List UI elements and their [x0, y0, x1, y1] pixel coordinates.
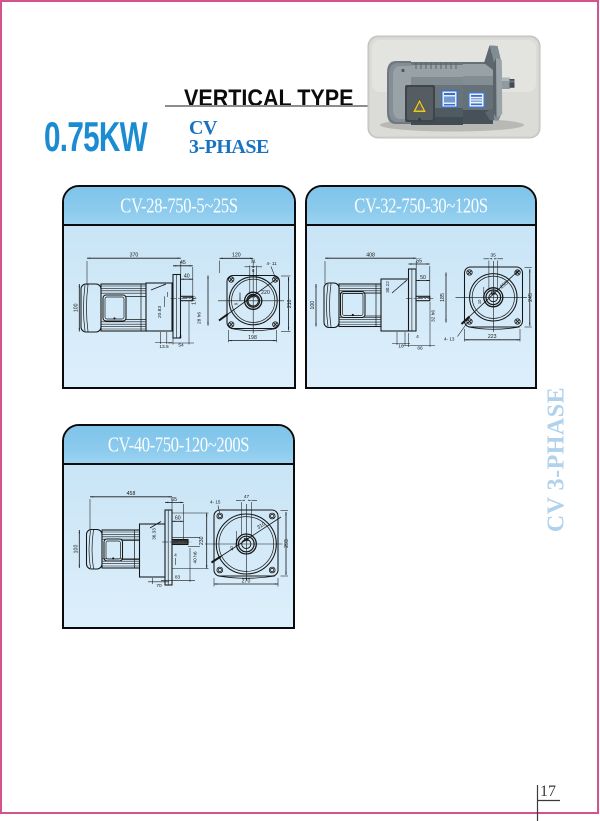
svg-text:255: 255: [499, 280, 510, 290]
svg-text:4- 15: 4- 15: [210, 500, 221, 505]
svg-text:16: 16: [398, 344, 404, 350]
svg-text:35: 35: [491, 252, 497, 258]
svg-text:66: 66: [417, 345, 423, 351]
svg-text:370: 370: [130, 253, 139, 259]
svg-text:198: 198: [248, 335, 257, 341]
svg-text:65: 65: [171, 497, 177, 503]
svg-text:223: 223: [488, 334, 497, 340]
svg-text:4: 4: [179, 334, 182, 340]
svg-text:20.83: 20.83: [157, 306, 163, 318]
svg-text:4: 4: [416, 334, 419, 340]
svg-text:83: 83: [175, 574, 181, 580]
svg-text:310: 310: [256, 521, 267, 531]
svg-text:4: 4: [174, 553, 177, 559]
svg-text:32 h6: 32 h6: [431, 310, 437, 322]
svg-text:10: 10: [229, 546, 234, 551]
svg-text:30.22: 30.22: [385, 281, 390, 293]
svg-text:8: 8: [252, 268, 255, 273]
svg-text:60: 60: [175, 516, 181, 522]
svg-text:170: 170: [192, 296, 198, 305]
svg-text:55: 55: [416, 258, 422, 264]
svg-text:458: 458: [127, 491, 136, 497]
svg-text:45: 45: [180, 260, 186, 266]
svg-text:4- 11: 4- 11: [267, 261, 278, 266]
svg-text:40: 40: [184, 274, 190, 280]
svg-text:230: 230: [199, 536, 205, 545]
svg-text:185: 185: [440, 293, 446, 302]
svg-text:4- 13: 4- 13: [444, 336, 455, 341]
svg-text:100: 100: [310, 301, 316, 310]
svg-text:100: 100: [73, 303, 79, 312]
svg-text:54: 54: [178, 343, 184, 349]
svg-text:293: 293: [284, 539, 290, 548]
svg-text:270: 270: [242, 578, 251, 584]
svg-text:40 h6: 40 h6: [193, 551, 199, 563]
svg-text:47: 47: [244, 494, 250, 500]
svg-text:9: 9: [234, 302, 239, 305]
svg-text:13.5: 13.5: [159, 344, 169, 350]
svg-text:50: 50: [420, 275, 426, 281]
svg-text:120: 120: [232, 253, 241, 259]
svg-text:220: 220: [261, 290, 270, 296]
svg-text:210: 210: [287, 299, 293, 308]
svg-text:36.33: 36.33: [152, 528, 157, 540]
svg-text:100: 100: [73, 545, 79, 554]
svg-text:28 h6: 28 h6: [196, 312, 202, 324]
svg-text:70: 70: [156, 583, 162, 589]
svg-text:245: 245: [528, 293, 534, 302]
svg-text:408: 408: [366, 253, 375, 259]
svg-text:10: 10: [477, 299, 482, 304]
svg-text:31: 31: [251, 259, 257, 264]
